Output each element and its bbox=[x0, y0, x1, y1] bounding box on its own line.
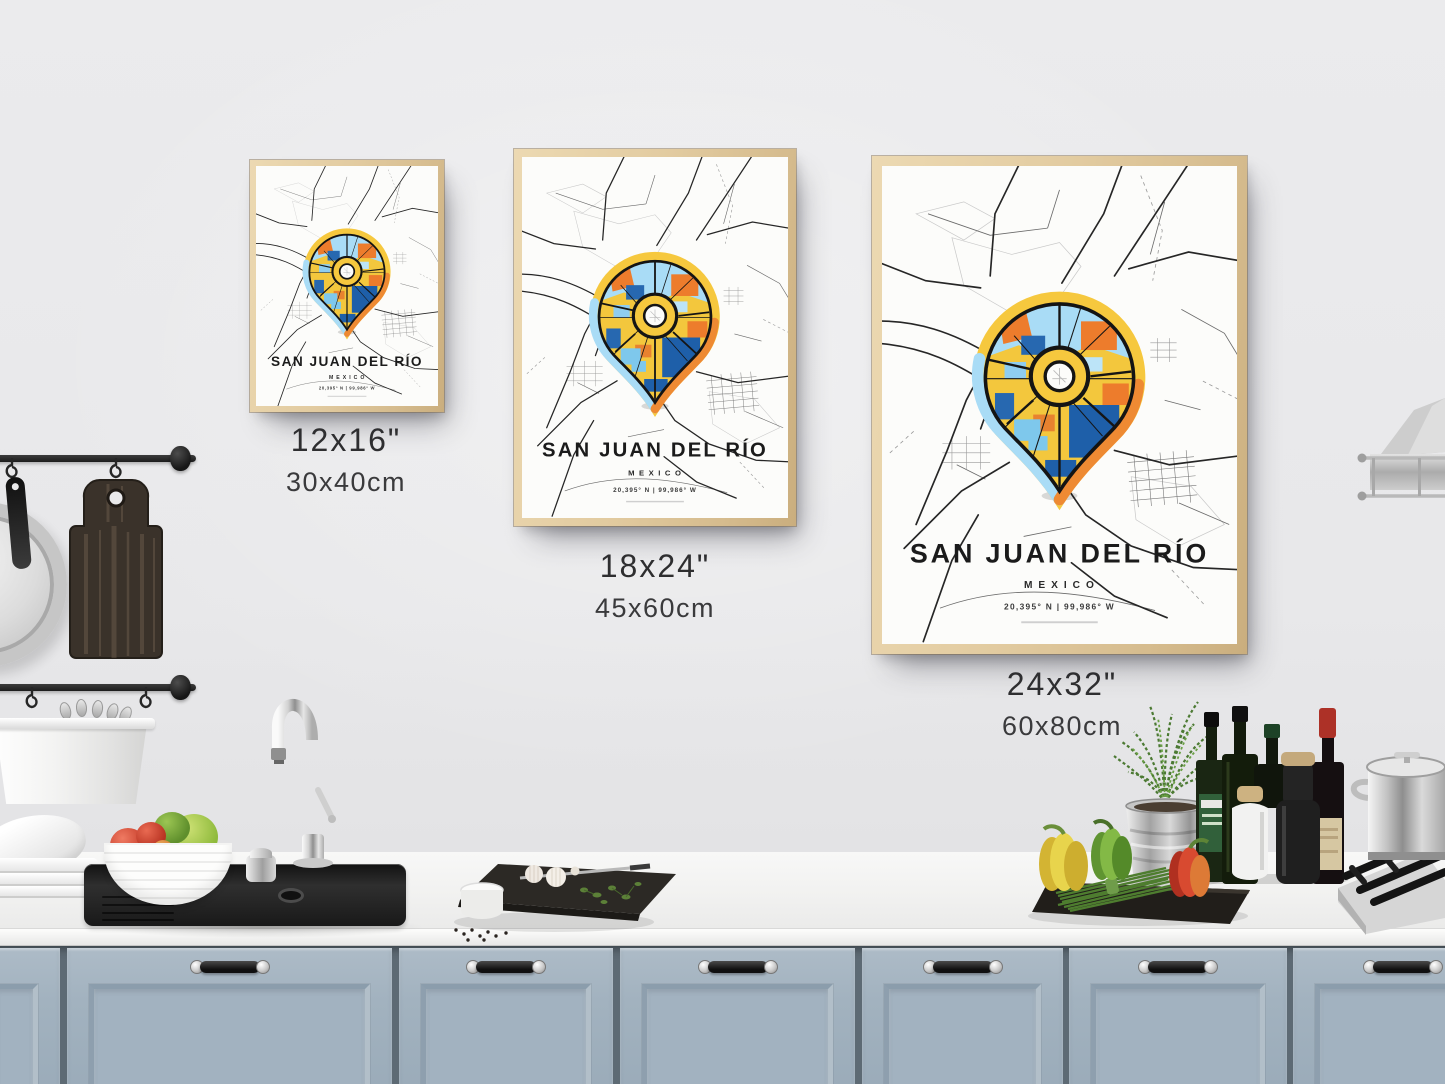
cabinet-door-panel bbox=[642, 984, 833, 1084]
handle-bar bbox=[200, 961, 260, 973]
cabinet-handle bbox=[1367, 960, 1439, 974]
cabinet-handle bbox=[702, 960, 774, 974]
size-inches: 12x16" bbox=[236, 422, 456, 459]
rail-finial bbox=[170, 446, 191, 471]
sink-drain bbox=[278, 888, 304, 903]
cabinet-door-panel bbox=[1315, 984, 1445, 1084]
poster-frame-24x32 bbox=[872, 156, 1247, 654]
map-poster-artwork bbox=[256, 166, 438, 406]
stock-pot bbox=[1368, 766, 1445, 858]
size-cm: 45x60cm bbox=[545, 593, 765, 624]
handle-bar bbox=[1373, 961, 1433, 973]
cabinet-drawer bbox=[399, 948, 613, 1084]
handle-cap bbox=[256, 960, 270, 974]
poster-sheet bbox=[882, 166, 1237, 644]
cabinet-handle bbox=[927, 960, 999, 974]
cabinet-door-panel bbox=[0, 984, 38, 1084]
cabinet-handle bbox=[470, 960, 542, 974]
cabinet-run bbox=[0, 946, 1445, 1084]
drainboard-groove bbox=[102, 912, 174, 914]
stock-pot-on-gas-burner bbox=[1338, 730, 1445, 935]
cabinet-door-panel bbox=[1091, 984, 1265, 1084]
size-cm: 30x40cm bbox=[236, 467, 456, 498]
rail-finial bbox=[170, 675, 191, 700]
handle-bar bbox=[476, 961, 536, 973]
s-hook bbox=[136, 687, 156, 713]
bell-pepper-red bbox=[1169, 840, 1210, 897]
handle-cap bbox=[764, 960, 778, 974]
cabinet-door bbox=[0, 948, 60, 1084]
size-label-12x16: 12x16" 30x40cm bbox=[236, 422, 456, 498]
s-hook bbox=[22, 687, 42, 713]
poster-sheet bbox=[522, 157, 788, 518]
drainboard-groove bbox=[102, 919, 174, 921]
cabinet-door-panel bbox=[884, 984, 1041, 1084]
handle-cap bbox=[989, 960, 1003, 974]
cabinet-door-panel bbox=[421, 984, 591, 1084]
size-inches: 18x24" bbox=[545, 548, 765, 585]
hanging-cutting-board bbox=[66, 474, 166, 664]
handle-bar bbox=[708, 961, 768, 973]
kitchen-product-mockup: SAN JUAN DEL RÍO MEXICO 20,395° N | 99,9… bbox=[0, 0, 1445, 1084]
garlic-serving-board bbox=[434, 850, 684, 945]
handle-bar bbox=[933, 961, 993, 973]
map-poster-artwork bbox=[522, 157, 788, 518]
utensil-bucket-rim bbox=[0, 718, 155, 729]
cabinet-door bbox=[620, 948, 855, 1084]
map-poster-artwork bbox=[882, 166, 1237, 644]
poster-frame-18x24 bbox=[514, 149, 796, 526]
faucet bbox=[268, 678, 360, 868]
handle-cap bbox=[532, 960, 546, 974]
range-hood bbox=[1348, 398, 1445, 526]
bell-pepper-green bbox=[1091, 821, 1132, 880]
cabinet-door bbox=[67, 948, 392, 1084]
utensil-bucket bbox=[0, 722, 152, 804]
cabinet-handle bbox=[1142, 960, 1214, 974]
bell-pepper-yellow bbox=[1039, 826, 1088, 891]
wall-rail-upper bbox=[0, 455, 196, 462]
cabinet-drawer bbox=[862, 948, 1063, 1084]
cabinet-door-panel bbox=[89, 984, 370, 1084]
handle-cap bbox=[1204, 960, 1218, 974]
poster-sheet bbox=[256, 166, 438, 406]
handle-bar bbox=[1148, 961, 1208, 973]
cabinet-door bbox=[1069, 948, 1287, 1084]
pot-handle bbox=[1354, 782, 1368, 798]
cabinet-handle bbox=[194, 960, 266, 974]
peppers-and-beans-board bbox=[1018, 812, 1283, 942]
poster-frame-12x16 bbox=[250, 160, 444, 412]
handle-cap bbox=[1429, 960, 1443, 974]
plate bbox=[0, 873, 94, 886]
size-label-18x24: 18x24" 45x60cm bbox=[545, 548, 765, 624]
cabinet-door bbox=[1293, 948, 1445, 1084]
